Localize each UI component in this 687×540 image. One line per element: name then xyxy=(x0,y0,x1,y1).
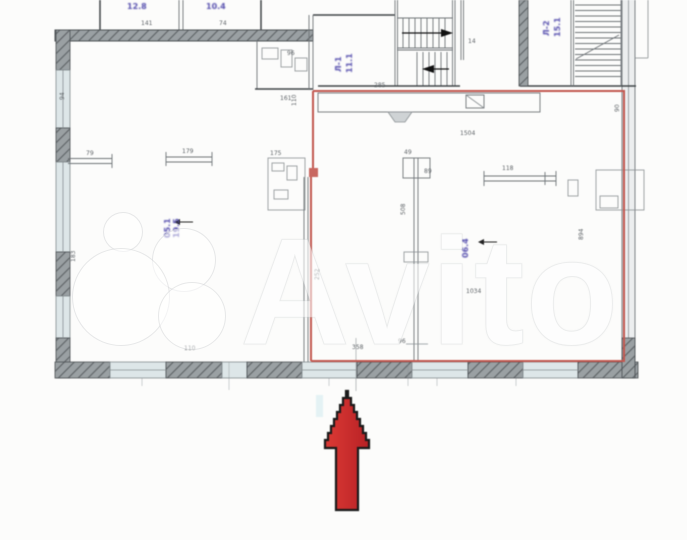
red-up-arrow-icon xyxy=(325,391,369,510)
pointer-arrow-graphic xyxy=(0,0,687,540)
pointer-arrow-layer xyxy=(0,0,687,540)
floorplan-screenshot: 1417496161110285141504947917917549891185… xyxy=(0,0,687,540)
